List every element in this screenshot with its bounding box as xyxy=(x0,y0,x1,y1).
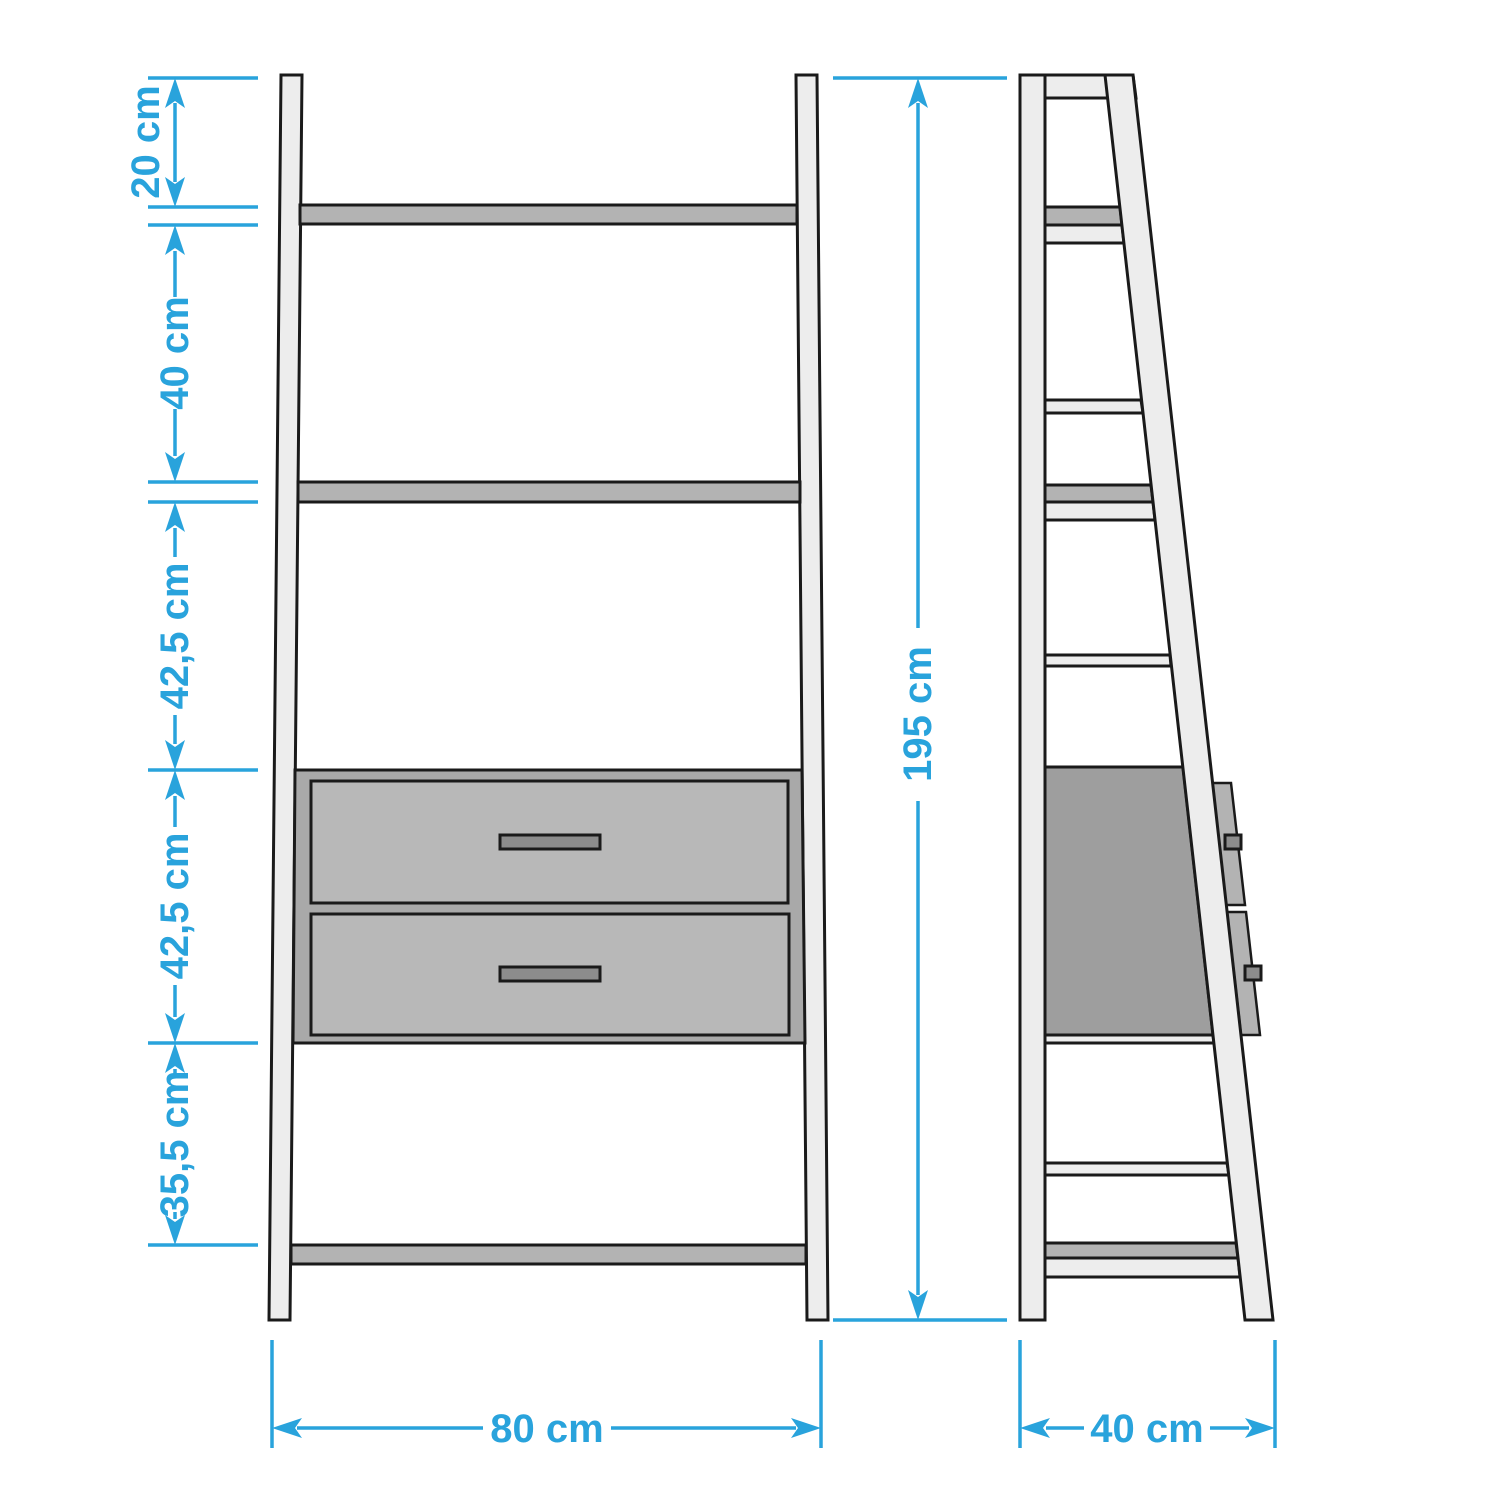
side-view xyxy=(1020,75,1273,1320)
side-shelf-middle-edge xyxy=(1045,485,1153,502)
dim-label-35-5cm: 35,5 cm xyxy=(153,1071,197,1218)
front-shelf-top xyxy=(300,205,797,224)
arrow-left-depth xyxy=(1020,1418,1050,1438)
side-back-leg xyxy=(1105,75,1273,1320)
arrow-up-seg5 xyxy=(165,1043,185,1073)
arrow-up-seg4 xyxy=(165,770,185,800)
side-drawer-1-handle xyxy=(1225,835,1241,849)
arrow-down-seg5 xyxy=(165,1215,185,1245)
dim-label-42-5cm-upper: 42,5 cm xyxy=(153,563,197,710)
dim-label-20cm: 20 cm xyxy=(124,85,168,198)
front-drawer-2-handle xyxy=(500,967,600,981)
arrow-down-seg4 xyxy=(165,1013,185,1043)
side-rung-3 xyxy=(1045,502,1155,520)
arrow-up-seg2 xyxy=(165,225,185,255)
side-rung-2 xyxy=(1045,400,1143,413)
front-view xyxy=(269,75,828,1320)
arrow-right-depth xyxy=(1245,1418,1275,1438)
side-rung-1 xyxy=(1045,225,1124,243)
side-front-leg xyxy=(1020,75,1045,1320)
dim-label-40cm-left: 40 cm xyxy=(153,296,197,409)
dim-label-42-5cm-lower: 42,5 cm xyxy=(153,833,197,980)
ladder-shelf-dimension-diagram: 20 cm 40 cm 42,5 cm 42,5 cm 35,5 cm 195 xyxy=(0,0,1500,1500)
side-shelf-bottom-edge xyxy=(1045,1243,1238,1258)
side-rung-4 xyxy=(1045,655,1171,666)
front-drawer-1-handle xyxy=(500,835,600,849)
dim-label-80cm: 80 cm xyxy=(490,1407,603,1451)
dim-label-195cm: 195 cm xyxy=(896,646,940,782)
front-shelf-middle xyxy=(298,482,800,502)
arrow-down-seg3 xyxy=(165,740,185,770)
side-drawer-2-handle xyxy=(1245,966,1261,980)
dim-label-40cm-depth: 40 cm xyxy=(1090,1407,1203,1451)
arrow-down-seg2 xyxy=(165,452,185,482)
front-left-rail xyxy=(269,75,302,1320)
side-rung-6 xyxy=(1045,1163,1229,1175)
front-right-rail xyxy=(796,75,828,1320)
side-shelf-top-edge xyxy=(1045,207,1122,225)
side-rung-7 xyxy=(1045,1258,1240,1277)
arrow-up-seg3 xyxy=(165,502,185,532)
front-shelf-bottom xyxy=(291,1245,806,1264)
